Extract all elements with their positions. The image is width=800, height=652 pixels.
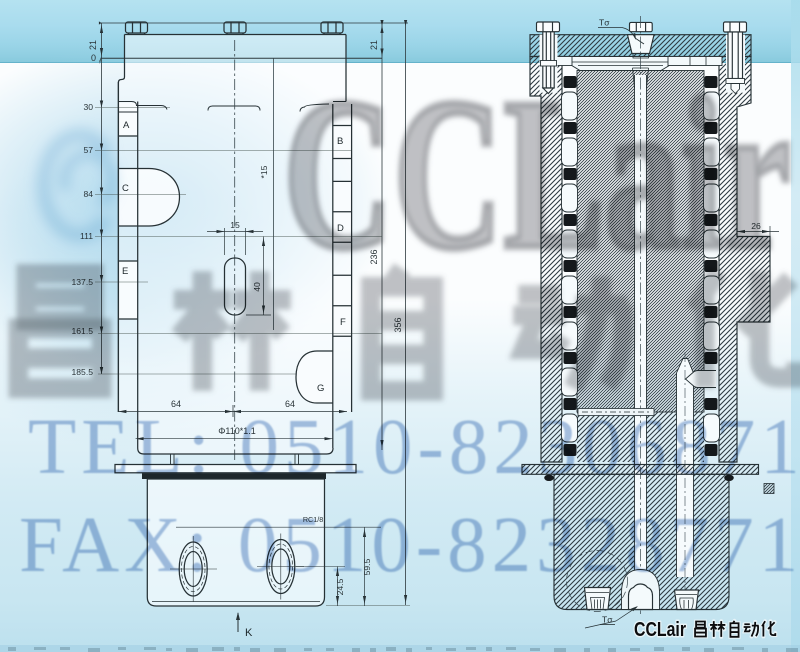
svg-text:CCLair: CCLair xyxy=(634,618,686,641)
